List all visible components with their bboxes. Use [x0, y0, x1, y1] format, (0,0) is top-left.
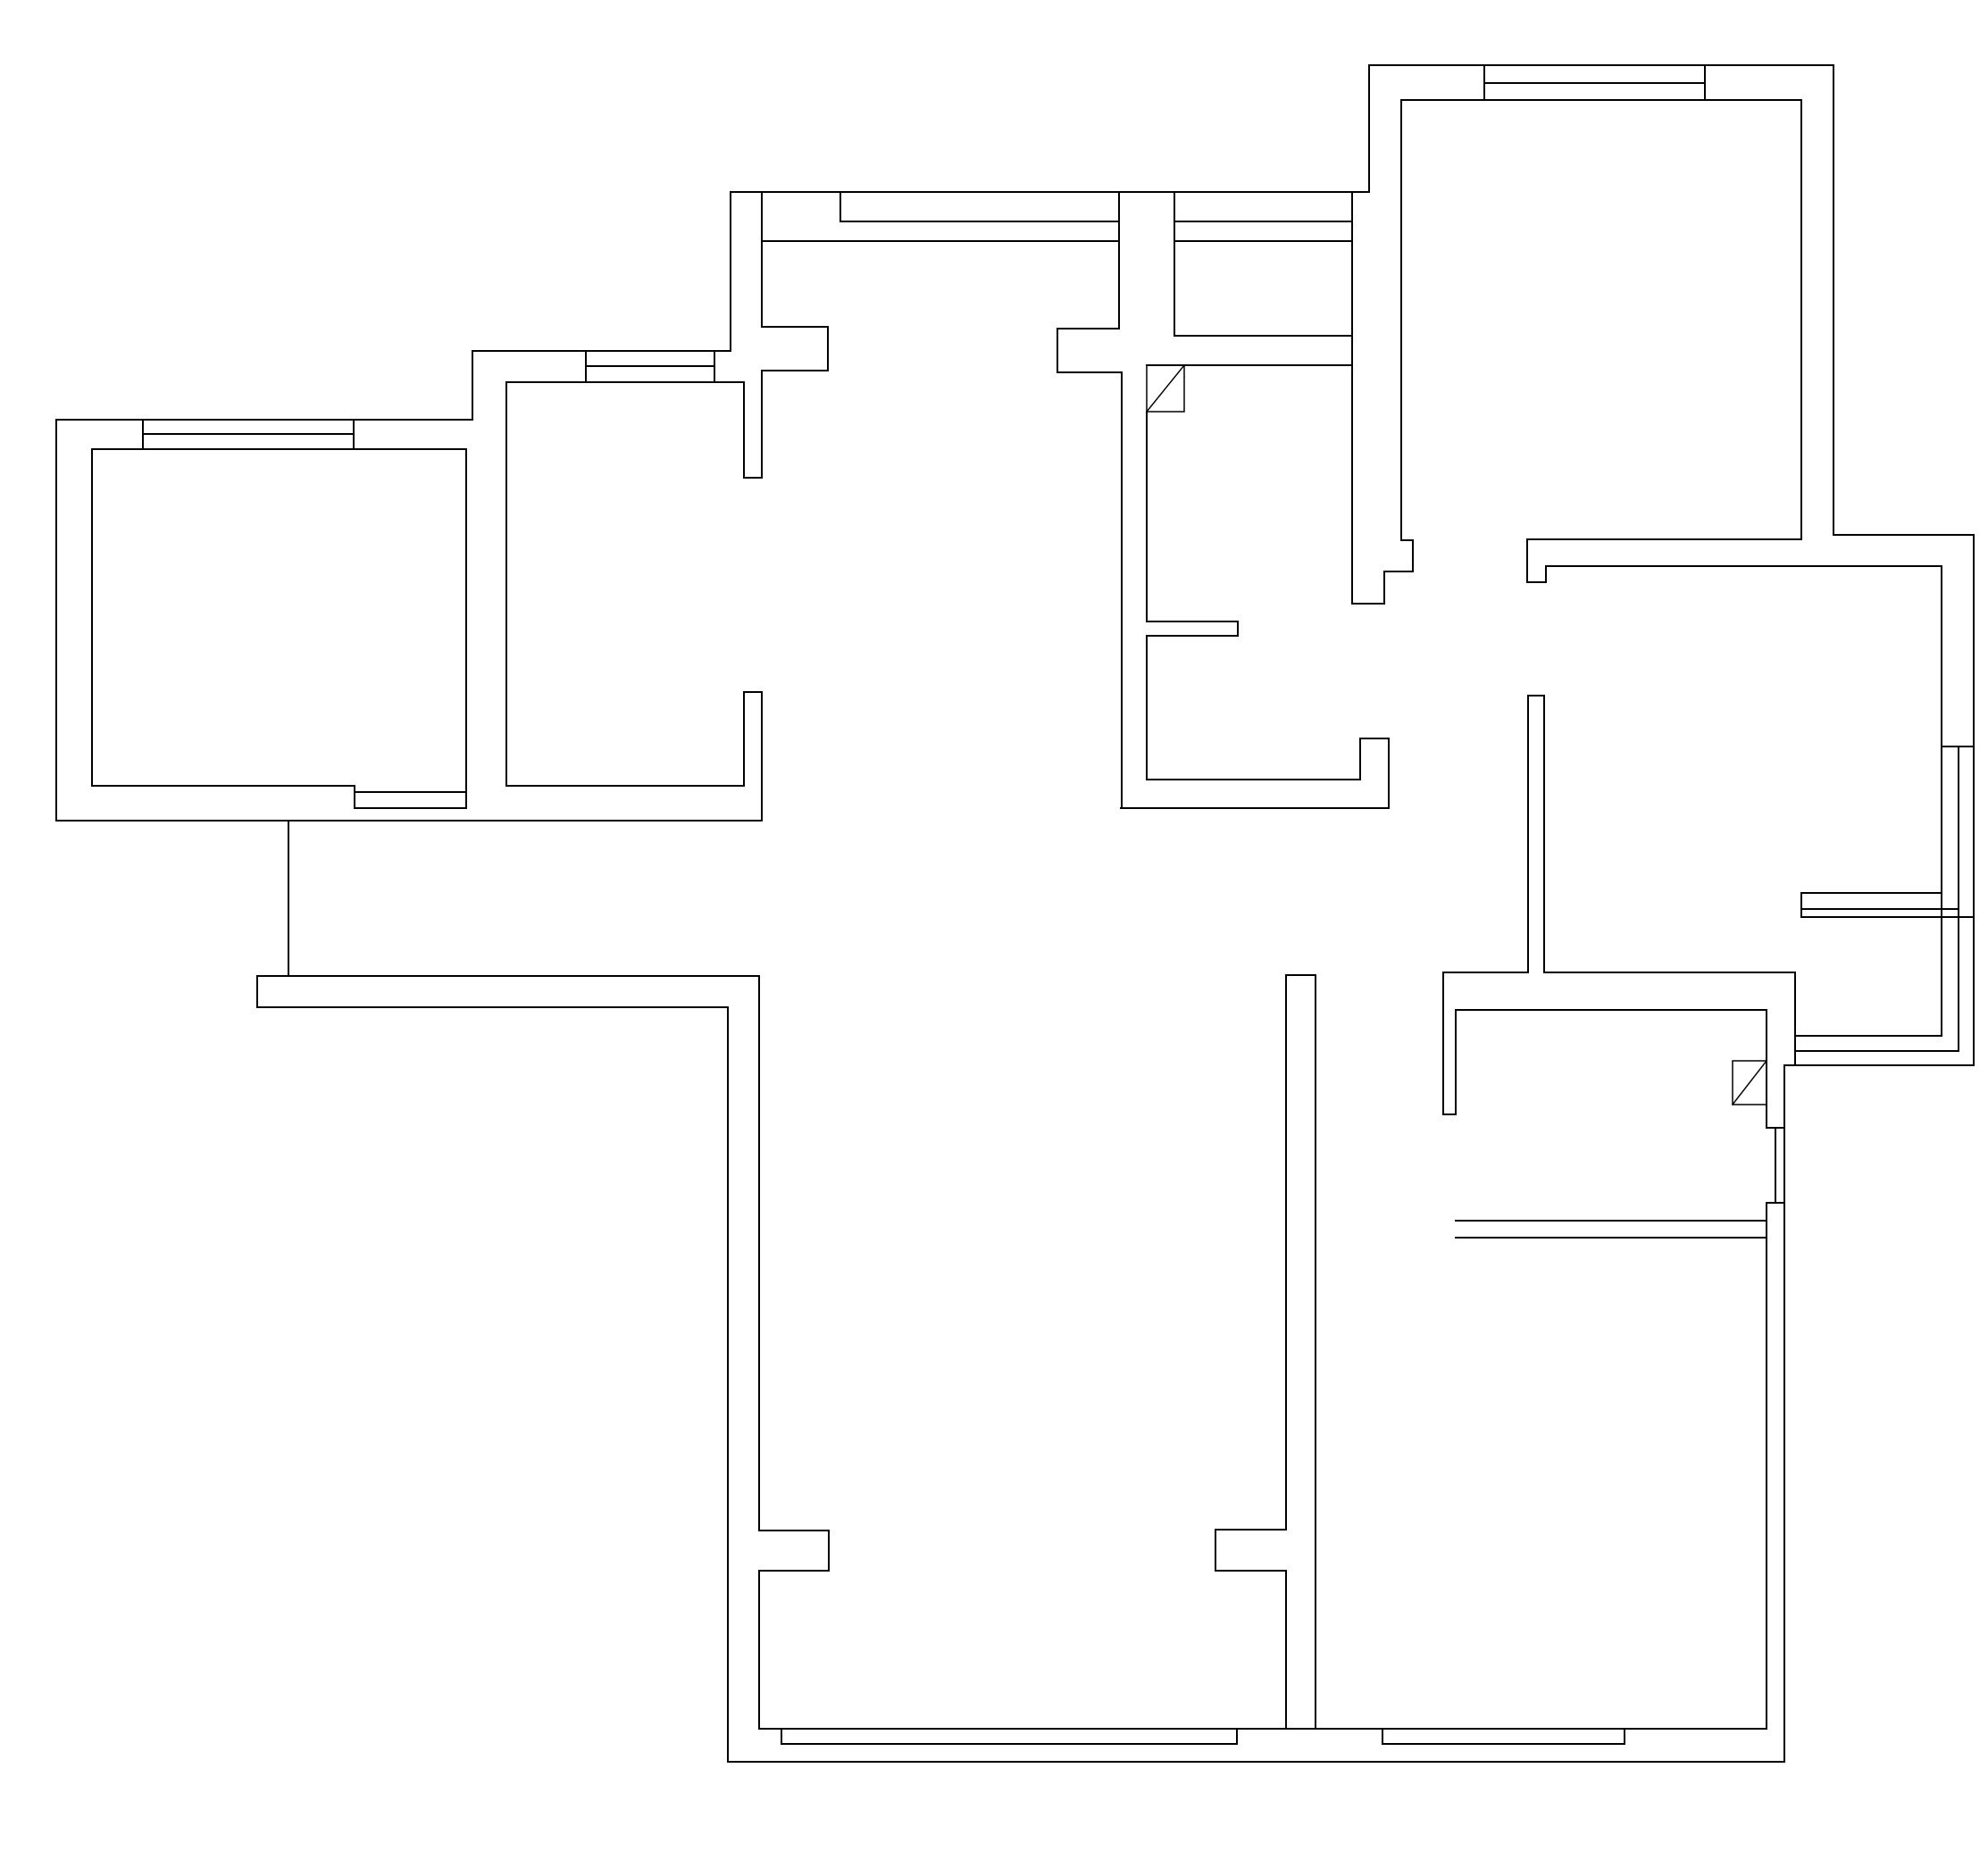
floor-plan-svg [0, 0, 1988, 1860]
wall-segment [1443, 972, 1456, 1114]
floor-plan-canvas [0, 0, 1988, 1860]
shaft-symbol-bathroom-diagonal-icon [1147, 365, 1184, 412]
wall-segment [744, 327, 828, 478]
wall-segment [92, 449, 355, 786]
wall-segment [1527, 539, 1942, 582]
wall-segment [744, 692, 762, 821]
wall-segment [1147, 621, 1238, 636]
wall-segment [1121, 738, 1389, 808]
wall-segment [56, 351, 731, 821]
wall-segment [1215, 1530, 1286, 1571]
wall-segment [1057, 192, 1122, 808]
shaft-symbol-bedroom-diagonal-icon [1733, 1061, 1767, 1105]
wall-segment [1352, 100, 1413, 604]
wall-segment [759, 1531, 829, 1571]
